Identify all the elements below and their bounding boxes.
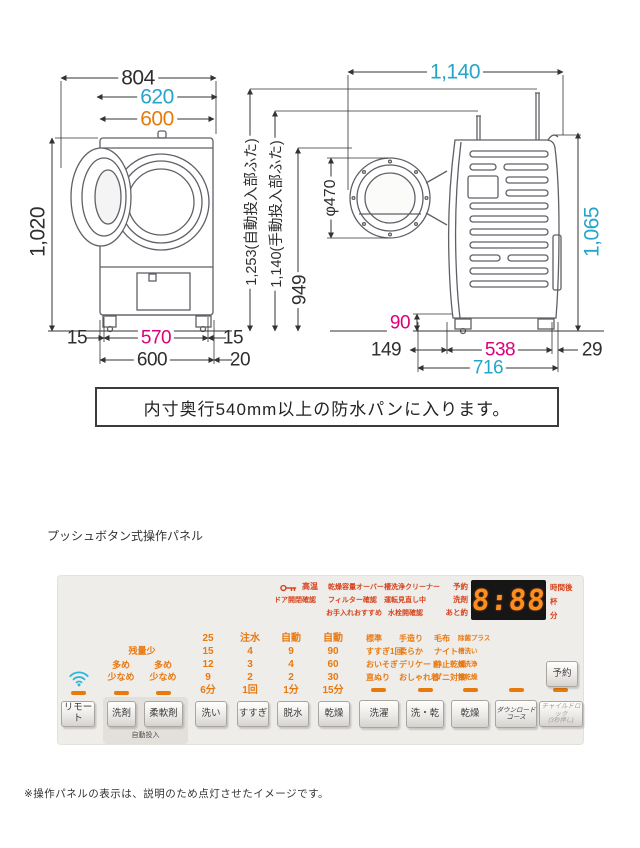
indicator-dry-capacity-over: 乾燥容量オーバー <box>328 584 384 591</box>
remote-indicator-dash <box>71 691 86 695</box>
indicator-maintenance: お手入れおすすめ <box>326 610 382 617</box>
time-display-digits: 8:88 <box>471 583 546 617</box>
dim-600-top: 600 <box>137 109 177 130</box>
dim-949: 949 <box>291 272 310 308</box>
dry-time-options: 自動90603015分 <box>311 632 355 697</box>
reserve-button[interactable]: 予約 <box>546 661 578 687</box>
washdry-indicator-dash <box>418 688 433 692</box>
childlock-indicator-dash <box>553 688 568 692</box>
download-course-button[interactable]: ダウンロード コース <box>495 700 537 728</box>
time-display: 8:88 <box>471 580 546 620</box>
dim-phi470: φ470 <box>323 176 339 219</box>
dim-15-right: 15 <box>223 329 243 348</box>
wifi-icon <box>68 669 90 687</box>
indicator-remaining: あと約 <box>428 609 468 617</box>
dry-button[interactable]: 乾燥 <box>318 701 350 727</box>
childlock-button[interactable]: チャイルドロック (3秒押し) <box>539 701 583 727</box>
indicator-filter-check: フィルター確認 <box>328 597 377 604</box>
dim-90: 90 <box>387 314 413 333</box>
dim-1140-manual-lid: 1,140(手動投入部ふた) <box>270 137 285 290</box>
indicator-door-check: ドア開閉確認 <box>274 597 316 604</box>
dim-620: 620 <box>137 87 177 108</box>
detergent-indicator-dash <box>114 691 129 695</box>
dim-15-left: 15 <box>67 329 87 348</box>
low-remaining-label: 残量少 <box>128 647 155 656</box>
dimension-drawing <box>0 50 640 390</box>
detergent-more-label: 多め <box>112 661 130 670</box>
spin-options: 自動9421分 <box>269 632 313 697</box>
panel-section-title: プッシュボタン式操作パネル <box>47 527 203 544</box>
softener-button[interactable]: 柔軟剤 <box>144 701 183 727</box>
indicator-operation-review: 運転見直し中 <box>384 597 426 604</box>
front-view-drawing <box>71 131 213 332</box>
dim-1065: 1,065 <box>582 207 603 257</box>
dim-1140-top: 1,140 <box>427 62 483 83</box>
softener-indicator-dash <box>156 691 171 695</box>
rinse-button[interactable]: すすぎ <box>237 701 269 727</box>
unit-minutes-label: 分 <box>550 612 558 620</box>
detergent-less-label: 少なめ <box>107 673 134 682</box>
softener-more-label: 多め <box>154 661 172 670</box>
side-view-drawing <box>350 93 561 334</box>
laundry-course-button[interactable]: 洗濯 <box>359 700 399 728</box>
operation-panel: 高温 乾燥容量オーバー 槽洗浄クリーナー ドア開閉確認 フィルター確認 運転見直… <box>57 575 584 745</box>
dry-indicator-dash <box>463 688 478 692</box>
dim-1253-auto-lid: 1,253(自動投入部ふた) <box>245 135 260 288</box>
unit-cups-label: 杯 <box>550 598 558 606</box>
indicator-high-temp: 高温 <box>302 583 318 591</box>
detergent-button[interactable]: 洗剤 <box>107 701 136 727</box>
rinse-options: 注水4321回 <box>228 632 272 697</box>
dim-1020: 1,020 <box>28 207 49 257</box>
download-indicator-dash <box>509 688 524 692</box>
laundry-indicator-dash <box>371 688 386 692</box>
dim-20: 20 <box>230 351 250 370</box>
softener-less-label: 少なめ <box>149 673 176 682</box>
wash-button[interactable]: 洗い <box>195 701 227 727</box>
wash-time-options: 25151296分 <box>186 632 230 697</box>
dim-716: 716 <box>470 359 506 378</box>
download-course-options: 除菌プラス槽洗い槽洗浄槽乾燥 <box>458 632 506 684</box>
indicator-tap-open-check: 水栓開確認 <box>388 610 423 617</box>
dry-course-button[interactable]: 乾燥 <box>451 700 489 728</box>
panel-footnote: ※操作パネルの表示は、説明のため点灯させたイメージです。 <box>24 786 329 801</box>
spin-button[interactable]: 脱水 <box>277 701 309 727</box>
key-icon <box>280 583 297 593</box>
dim-149: 149 <box>371 341 401 360</box>
washdry-course-button[interactable]: 洗・乾 <box>406 700 444 728</box>
dim-570: 570 <box>138 329 174 348</box>
remote-button[interactable]: リモート <box>61 701 95 727</box>
manual-page: 804 620 600 1,020 15 570 15 600 20 1,253… <box>0 0 640 848</box>
dim-600-bottom: 600 <box>134 351 170 370</box>
indicator-detergent: 洗剤 <box>428 596 468 604</box>
indicator-reserve: 予約 <box>428 583 468 591</box>
auto-dispense-label: 自動投入 <box>103 732 188 739</box>
unit-hours-label: 時間後 <box>550 584 573 592</box>
waterproof-pan-note: 内寸奥行540mm以上の防水パンに入ります。 <box>95 387 559 427</box>
dim-29: 29 <box>582 341 602 360</box>
